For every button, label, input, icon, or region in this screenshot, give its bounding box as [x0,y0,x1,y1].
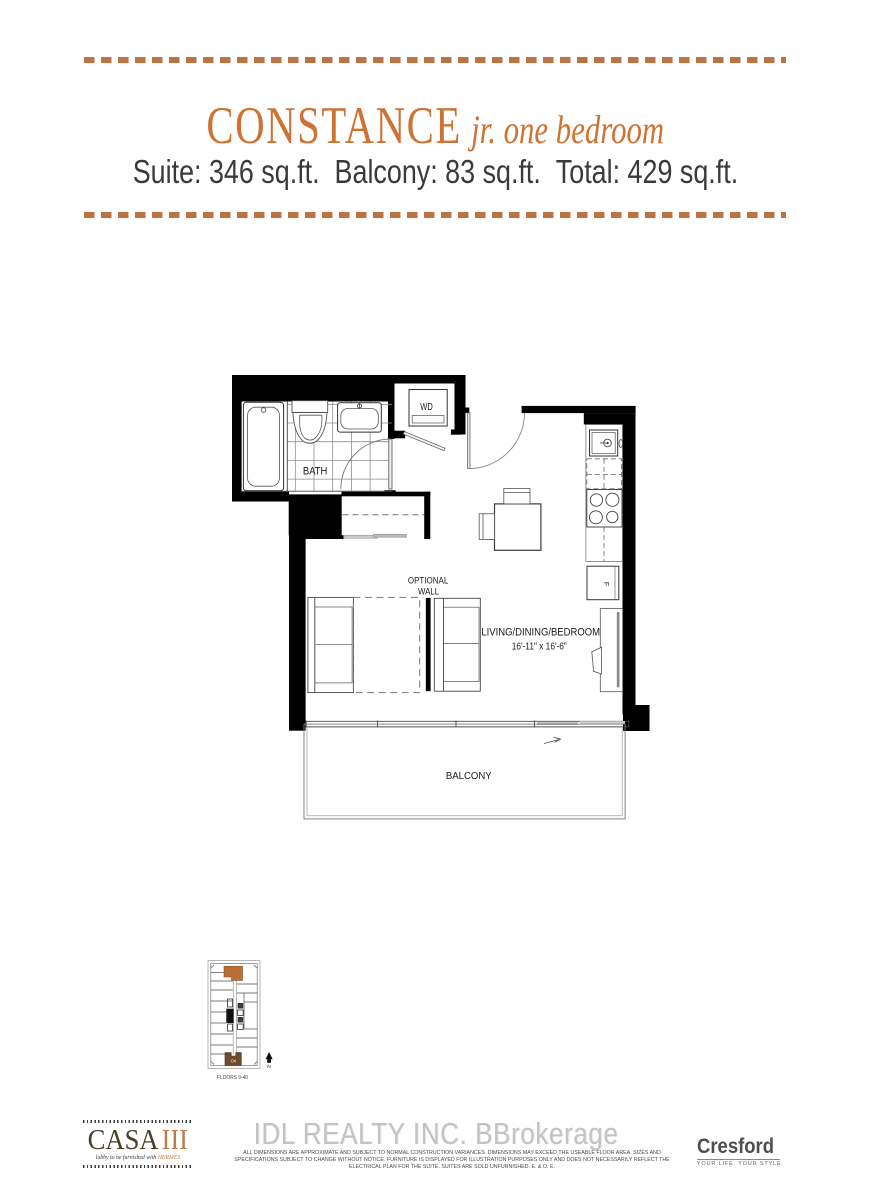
svg-text:F: F [602,582,609,586]
svg-text:OPTIONAL: OPTIONAL [408,575,448,585]
svg-text:WD: WD [420,402,433,413]
svg-text:BALCONY: BALCONY [446,771,492,782]
svg-text:N: N [267,1064,271,1070]
svg-text:BATH: BATH [303,465,328,477]
svg-text:LIVING/DINING/BEDROOM: LIVING/DINING/BEDROOM [481,627,600,639]
svg-text:04: 04 [231,1059,236,1064]
svg-text:16'-11" x 16'-6": 16'-11" x 16'-6" [512,642,568,653]
svg-text:WALL: WALL [418,586,439,596]
svg-text:FLOORS 9-40: FLOORS 9-40 [217,1075,248,1081]
